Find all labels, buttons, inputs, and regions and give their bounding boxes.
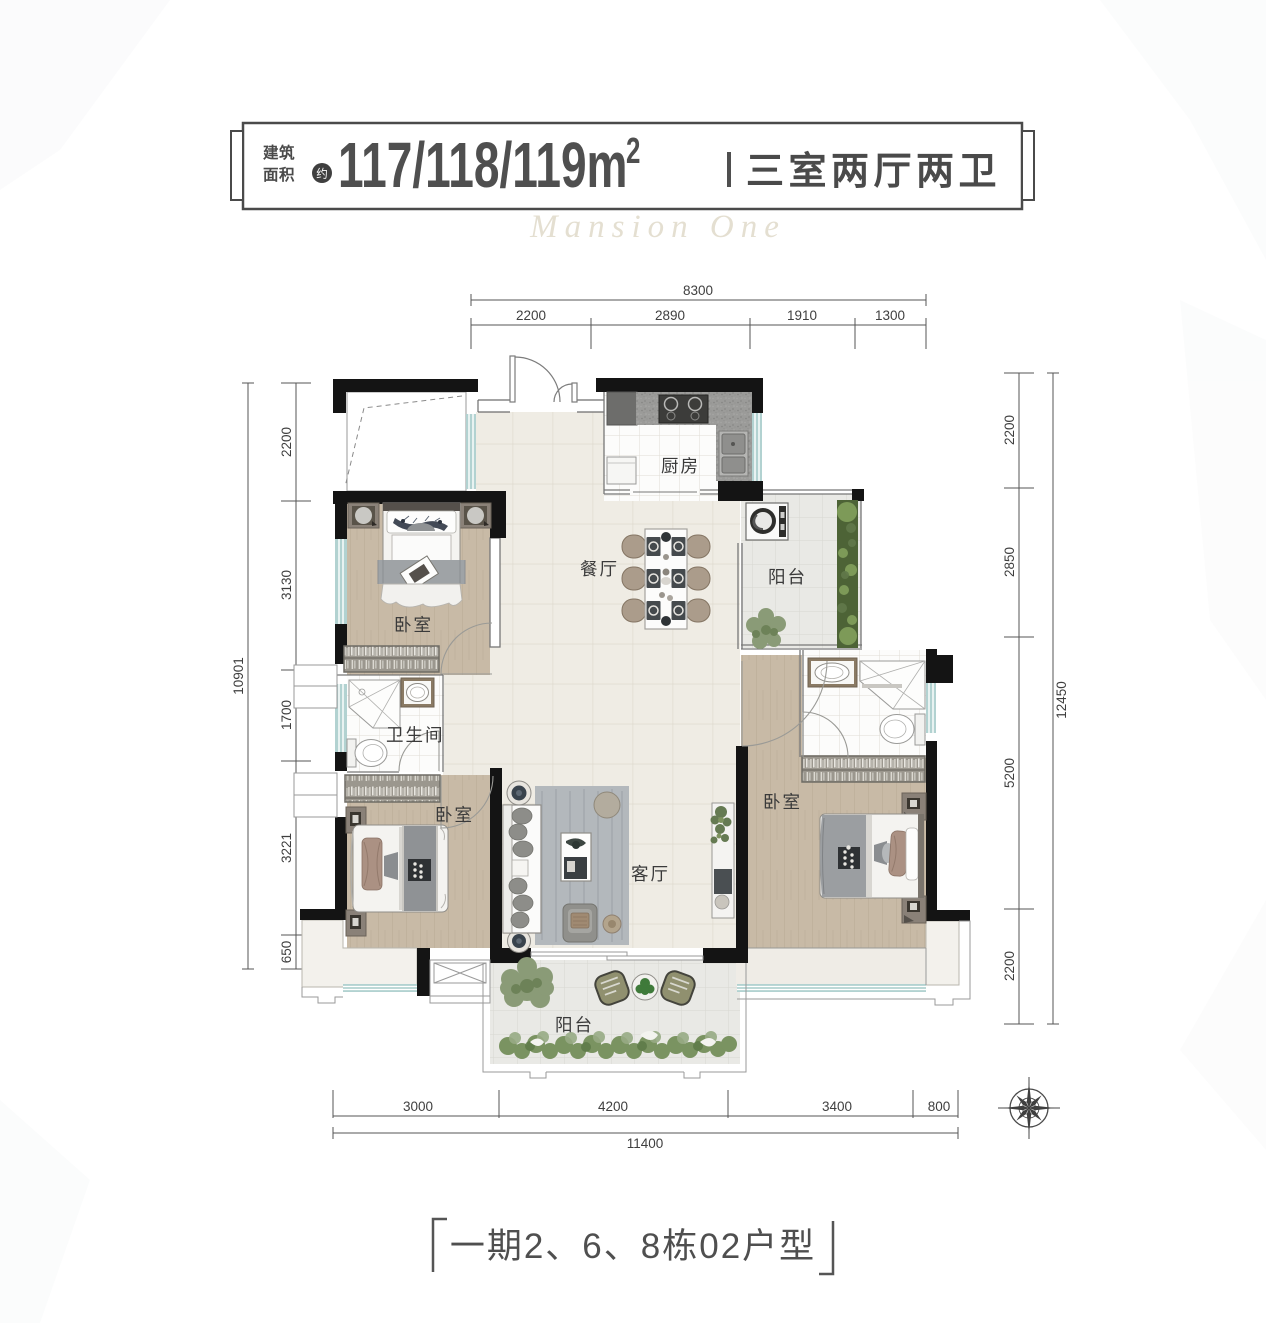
svg-text:厨房: 厨房	[661, 456, 700, 476]
svg-text:客厅: 客厅	[631, 864, 670, 884]
svg-text:卧室: 卧室	[763, 792, 802, 812]
svg-text:2: 2	[626, 131, 640, 171]
svg-text:3130: 3130	[279, 570, 294, 600]
svg-text:阳台: 阳台	[768, 567, 807, 587]
svg-text:卧室: 卧室	[435, 805, 474, 825]
svg-text:2200: 2200	[279, 427, 294, 457]
svg-text:Mansion One: Mansion One	[529, 209, 786, 245]
svg-text:3000: 3000	[403, 1099, 433, 1114]
svg-text:2200: 2200	[516, 308, 546, 323]
svg-text:阳台: 阳台	[555, 1015, 594, 1035]
svg-text:4200: 4200	[598, 1099, 628, 1114]
svg-text:餐厅: 餐厅	[580, 559, 619, 579]
svg-text:2890: 2890	[655, 308, 685, 323]
svg-text:建筑: 建筑	[263, 143, 295, 162]
svg-text:11400: 11400	[627, 1136, 664, 1151]
svg-text:3400: 3400	[822, 1099, 852, 1114]
svg-text:卫生间: 卫生间	[386, 725, 445, 745]
svg-text:2200: 2200	[1002, 415, 1017, 445]
svg-text:1700: 1700	[279, 700, 294, 730]
svg-text:117/118/119m: 117/118/119m	[338, 130, 628, 201]
svg-text:800: 800	[928, 1099, 951, 1114]
svg-text:1910: 1910	[787, 308, 817, 323]
svg-text:卧室: 卧室	[394, 615, 433, 635]
svg-text:8300: 8300	[683, 283, 713, 298]
svg-text:2200: 2200	[1002, 951, 1017, 981]
svg-text:650: 650	[279, 941, 294, 964]
svg-text:一期2、6、8栋02户型: 一期2、6、8栋02户型	[450, 1227, 816, 1266]
svg-text:约: 约	[316, 167, 328, 181]
svg-text:3221: 3221	[279, 833, 294, 863]
svg-text:1300: 1300	[875, 308, 905, 323]
svg-text:10901: 10901	[231, 657, 246, 695]
svg-text:5200: 5200	[1002, 758, 1017, 788]
svg-text:12450: 12450	[1054, 681, 1069, 719]
svg-text:2850: 2850	[1002, 547, 1017, 577]
svg-text:面积: 面积	[263, 166, 295, 184]
svg-text:三室两厅两卫: 三室两厅两卫	[746, 150, 1001, 193]
